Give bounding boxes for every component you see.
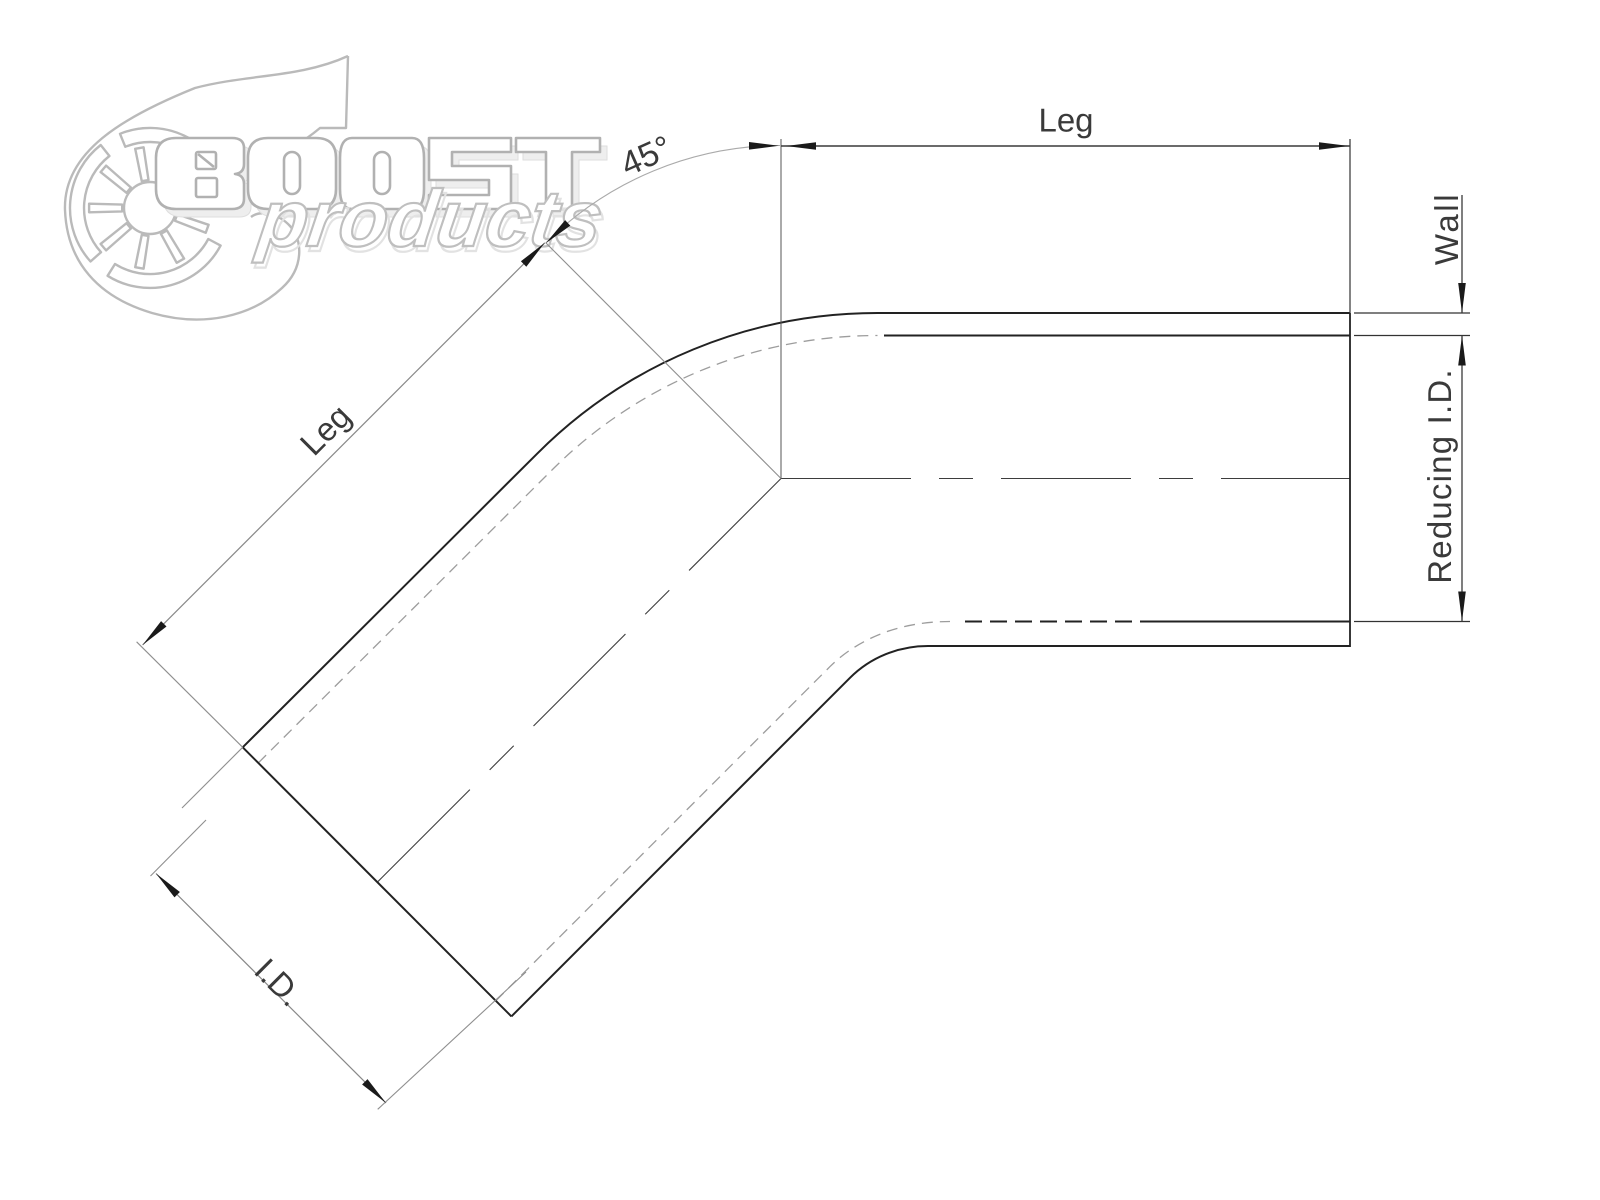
svg-text:Reducing I.D.: Reducing I.D. <box>1421 368 1458 584</box>
svg-text:Wall: Wall <box>1428 192 1465 265</box>
svg-text:I.D.: I.D. <box>248 951 310 1013</box>
svg-text:Leg: Leg <box>1038 102 1093 139</box>
svg-text:Leg: Leg <box>293 397 358 462</box>
svg-text:products: products <box>252 174 609 263</box>
svg-text:45°: 45° <box>615 128 677 184</box>
